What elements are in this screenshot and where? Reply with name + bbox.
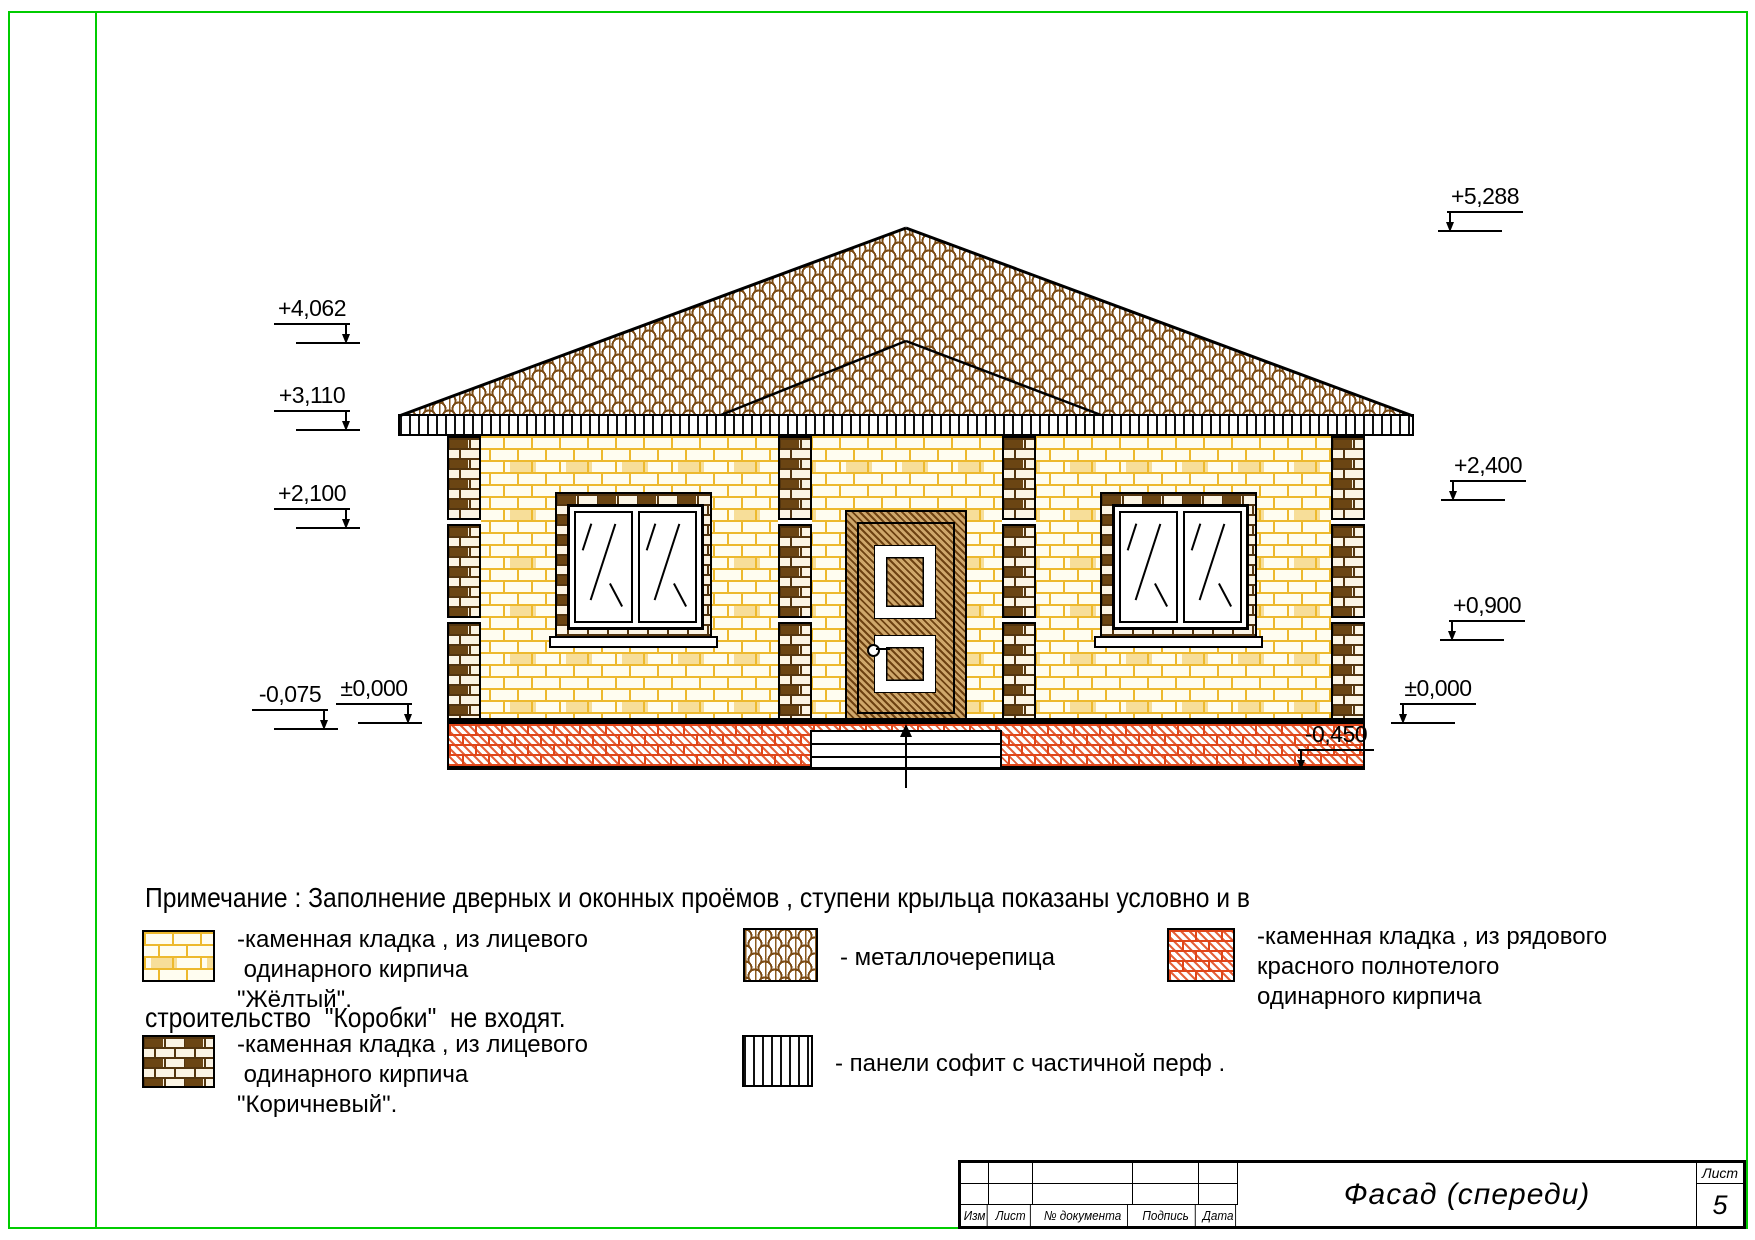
legend-label: -каменная кладка , из лицевого одинарног… bbox=[237, 1030, 588, 1120]
pilaster-segment bbox=[447, 524, 481, 618]
level-line bbox=[296, 527, 360, 529]
level-line bbox=[358, 722, 422, 724]
legend-line: -каменная кладка , из лицевого bbox=[237, 1030, 588, 1060]
window-left bbox=[555, 492, 712, 638]
elevation-value: +2,100 bbox=[274, 480, 350, 510]
title-block-cell bbox=[1133, 1163, 1199, 1184]
legend-swatch-brown-brick bbox=[142, 1035, 215, 1088]
elevation-mark: +4,062 bbox=[274, 295, 350, 323]
pilaster-segment bbox=[1331, 436, 1365, 520]
drawing-sheet: +4,062 +3,110 +2,100 -0,075 ±0,000 +5,28… bbox=[0, 0, 1755, 1240]
elevation-mark: -0,450 bbox=[1298, 721, 1374, 749]
elevation-mark: +3,110 bbox=[274, 382, 350, 410]
level-line bbox=[1441, 499, 1505, 501]
pilaster-segment bbox=[1331, 622, 1365, 722]
title-block-cell bbox=[1199, 1163, 1238, 1184]
legend-label: - металлочерепица bbox=[840, 943, 1055, 973]
steps-arrow-head bbox=[900, 724, 912, 737]
pilaster-segment bbox=[447, 622, 481, 722]
elevation-mark: +0,900 bbox=[1449, 592, 1525, 620]
title-block-header-izm: Изм bbox=[962, 1205, 987, 1226]
leader-arrow bbox=[407, 705, 409, 714]
leader-arrow bbox=[1402, 705, 1404, 714]
title-block-cell bbox=[1033, 1163, 1133, 1184]
window-sash bbox=[638, 511, 697, 623]
window-sill-right bbox=[1094, 636, 1263, 648]
level-line bbox=[1391, 722, 1455, 724]
pilaster-segment bbox=[778, 436, 812, 520]
drawing-title: Фасад (спереди) bbox=[1238, 1163, 1697, 1226]
sheet-margin-line bbox=[95, 11, 97, 1229]
legend-swatch-yellow-brick bbox=[142, 930, 215, 982]
elevation-value: +5,288 bbox=[1447, 183, 1523, 213]
elevation-value: -0,075 bbox=[252, 681, 328, 711]
window-right bbox=[1100, 492, 1257, 638]
sheet-label: Лист bbox=[1697, 1163, 1743, 1184]
legend-swatch-metal-tile bbox=[743, 928, 818, 982]
window-sash bbox=[574, 511, 633, 623]
leader-arrow bbox=[1452, 482, 1454, 491]
legend-label: - панели софит с частичной перф . bbox=[835, 1049, 1225, 1079]
note-line: Примечание : Заполнение дверных и оконны… bbox=[145, 878, 1250, 918]
leader-arrow bbox=[345, 510, 347, 519]
leader-arrow bbox=[345, 412, 347, 421]
door-panel-lower bbox=[875, 636, 935, 692]
eave-soffit-band bbox=[398, 414, 1414, 436]
window-frame bbox=[567, 504, 704, 630]
pilaster-center-left bbox=[778, 436, 812, 722]
elevation-value: +0,900 bbox=[1449, 592, 1525, 622]
pilaster-segment bbox=[778, 524, 812, 618]
elevation-value: ±0,000 bbox=[336, 675, 412, 705]
pilaster-segment bbox=[1002, 524, 1036, 618]
window-frame bbox=[1112, 504, 1249, 630]
elevation-mark: ±0,000 bbox=[336, 675, 412, 703]
elevation-value: +4,062 bbox=[274, 295, 350, 325]
pilaster-center-right bbox=[1002, 436, 1036, 722]
door-leaf bbox=[857, 522, 955, 714]
elevation-value: +3,110 bbox=[274, 382, 350, 412]
leader-arrow bbox=[345, 325, 347, 334]
pilaster-corner-left bbox=[447, 436, 481, 722]
level-line bbox=[274, 728, 338, 730]
pilaster-segment bbox=[1002, 622, 1036, 722]
title-block-header-list: Лист bbox=[991, 1205, 1031, 1226]
level-line bbox=[1440, 639, 1504, 641]
wall-base-line bbox=[447, 718, 1365, 722]
title-block: Изм Лист № документа Подпись Дата Фасад … bbox=[958, 1160, 1746, 1229]
legend-label: -каменная кладка , из рядового красного … bbox=[1257, 922, 1607, 1012]
entrance-door bbox=[845, 510, 967, 722]
leader-arrow bbox=[1300, 751, 1302, 760]
title-block-cell bbox=[1133, 1184, 1199, 1205]
legend-line: красного полнотелого bbox=[1257, 952, 1607, 982]
legend-swatch-soffit-panel bbox=[742, 1035, 813, 1087]
pilaster-segment bbox=[1002, 436, 1036, 520]
pilaster-segment bbox=[447, 436, 481, 520]
elevation-value: ±0,000 bbox=[1400, 675, 1476, 705]
title-block-cell bbox=[989, 1184, 1033, 1205]
sheet-number: 5 bbox=[1697, 1184, 1743, 1226]
legend-line: одинарного кирпича bbox=[237, 1060, 588, 1090]
window-sash bbox=[1119, 511, 1178, 623]
leader-arrow bbox=[1451, 622, 1453, 631]
title-block-cell bbox=[989, 1163, 1033, 1184]
leader-arrow bbox=[323, 711, 325, 720]
title-block-cell bbox=[1199, 1184, 1238, 1205]
pilaster-segment bbox=[1331, 524, 1365, 618]
leader-arrow bbox=[1449, 213, 1451, 222]
title-block-cell bbox=[961, 1163, 989, 1184]
door-knob bbox=[867, 644, 880, 657]
pilaster-corner-right bbox=[1331, 436, 1365, 722]
level-line bbox=[1438, 230, 1502, 232]
title-block-header-signature: Подпись bbox=[1136, 1205, 1195, 1226]
title-block-cell bbox=[1033, 1184, 1133, 1205]
title-block-header-docnum: № документа bbox=[1038, 1205, 1128, 1226]
title-block-header-date: Дата bbox=[1201, 1205, 1236, 1226]
legend-line: - панели софит с частичной перф . bbox=[835, 1049, 1225, 1079]
legend-line: одинарного кирпича bbox=[237, 955, 588, 985]
legend-label: -каменная кладка , из лицевого одинарног… bbox=[237, 925, 588, 1015]
door-panel-upper bbox=[875, 546, 935, 618]
elevation-mark: +2,400 bbox=[1450, 452, 1526, 480]
elevation-value: -0,450 bbox=[1298, 721, 1374, 751]
legend-line: -каменная кладка , из лицевого bbox=[237, 925, 588, 955]
elevation-mark: ±0,000 bbox=[1400, 675, 1476, 703]
legend-line: -каменная кладка , из рядового bbox=[1257, 922, 1607, 952]
legend-line: "Жёлтый". bbox=[237, 985, 588, 1015]
elevation-mark: +2,100 bbox=[274, 480, 350, 508]
window-sill-left bbox=[549, 636, 718, 648]
window-sash bbox=[1183, 511, 1242, 623]
elevation-mark: +5,288 bbox=[1447, 183, 1523, 211]
door-handle bbox=[876, 648, 890, 650]
elevation-value: +2,400 bbox=[1450, 452, 1526, 482]
level-line bbox=[1289, 768, 1353, 770]
title-block-cell bbox=[961, 1184, 989, 1205]
legend-line: "Коричневый". bbox=[237, 1090, 588, 1120]
legend-swatch-red-brick bbox=[1167, 928, 1235, 982]
level-line bbox=[296, 342, 360, 344]
steps-direction-arrow bbox=[905, 728, 907, 788]
legend-line: - металлочерепица bbox=[840, 943, 1055, 973]
level-line bbox=[296, 429, 360, 431]
pilaster-segment bbox=[778, 622, 812, 722]
legend-line: одинарного кирпича bbox=[1257, 982, 1607, 1012]
elevation-mark: -0,075 bbox=[252, 681, 328, 709]
